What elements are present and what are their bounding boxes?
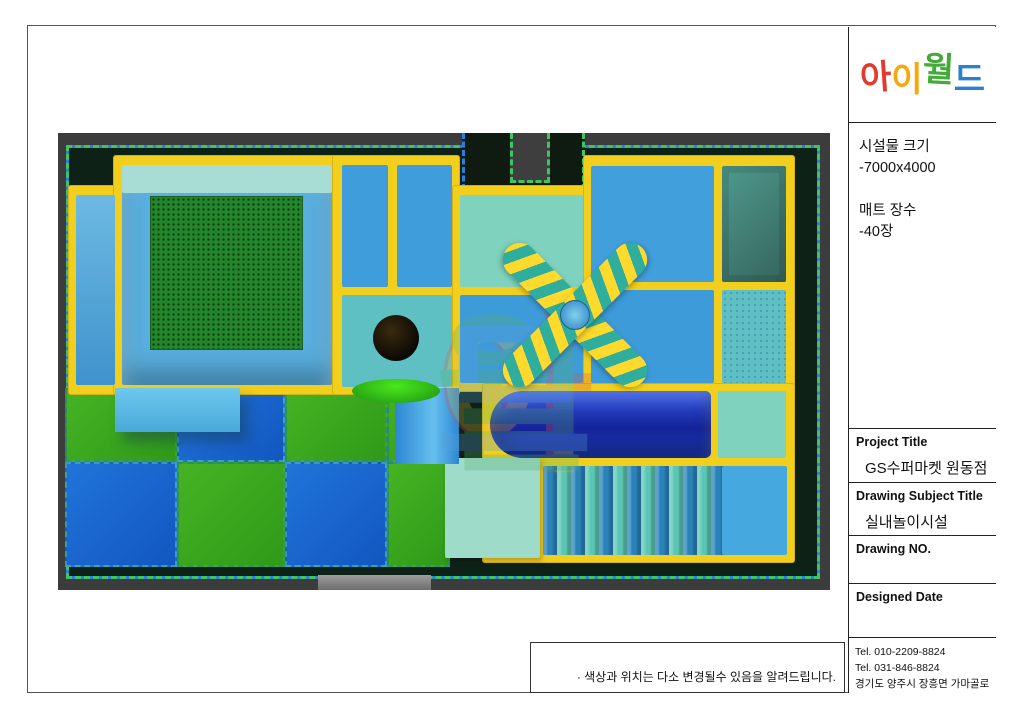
pinwheel-hub <box>560 300 590 330</box>
note-box: · 색상과 위치는 다소 변경될수 있음을 알려드립니다. <box>530 642 845 693</box>
trampoline-pit-edge <box>122 165 332 193</box>
address: 경기도 양주시 장흥면 가마골로 281 <box>855 677 990 695</box>
tel-1: Tel. 010-2209-8824 <box>855 645 990 661</box>
color-change-note: · 색상과 위치는 다소 변경될수 있음을 알려드립니다. <box>577 668 836 685</box>
tel-2: Tel. 031-846-8824 <box>855 661 990 677</box>
floor-mat <box>65 462 177 567</box>
logo-char: 이 <box>891 52 922 101</box>
mat-count-value: -40장 <box>859 222 986 243</box>
playground-floor-plan: 아 이 월 드 <box>58 133 830 590</box>
title-block: 아 이 월 드 시설물 크기 -7000x4000 매트 장수 -40장 Pro… <box>848 27 996 693</box>
mat-count-label: 매트 장수 <box>859 201 986 222</box>
designed-date-label: Designed Date <box>849 584 996 604</box>
drawing-no-label: Drawing NO. <box>849 536 996 556</box>
designed-date-cell: Designed Date <box>849 584 996 638</box>
project-title-cell: Project Title GS수퍼마켓 원동점 <box>849 429 996 483</box>
drawing-subject-value: 실내놀이시설 <box>849 503 996 532</box>
logo-char: 월 <box>921 41 955 92</box>
specs-cell: 시설물 크기 -7000x4000 매트 장수 -40장 <box>849 123 996 429</box>
wall-notch-tab <box>510 133 550 183</box>
drawing-sheet: 아 이 월 드 아 이 월 드 시설물 크기 -7000x4000 매트 장수 … <box>0 0 1024 723</box>
annex-mat <box>76 195 115 385</box>
logo-char: 아 <box>858 49 893 100</box>
project-title-label: Project Title <box>849 429 996 449</box>
drawing-no-cell: Drawing NO. <box>849 536 996 584</box>
entrance-gap <box>318 575 431 590</box>
dark-teal-mat-topright <box>722 166 786 282</box>
logo-char: 드 <box>954 52 985 101</box>
drawing-subject-cell: Drawing Subject Title 실내놀이시설 <box>849 483 996 536</box>
facility-size-value: -7000x4000 <box>859 158 986 179</box>
contact-cell: Tel. 010-2209-8824 Tel. 031-846-8824 경기도… <box>849 638 996 694</box>
company-logo: 아 이 월 드 <box>849 27 996 123</box>
project-title-value: GS수퍼마켓 원동점 <box>849 449 996 478</box>
drawing-subject-label: Drawing Subject Title <box>849 483 996 503</box>
facility-size-label: 시설물 크기 <box>859 137 986 158</box>
